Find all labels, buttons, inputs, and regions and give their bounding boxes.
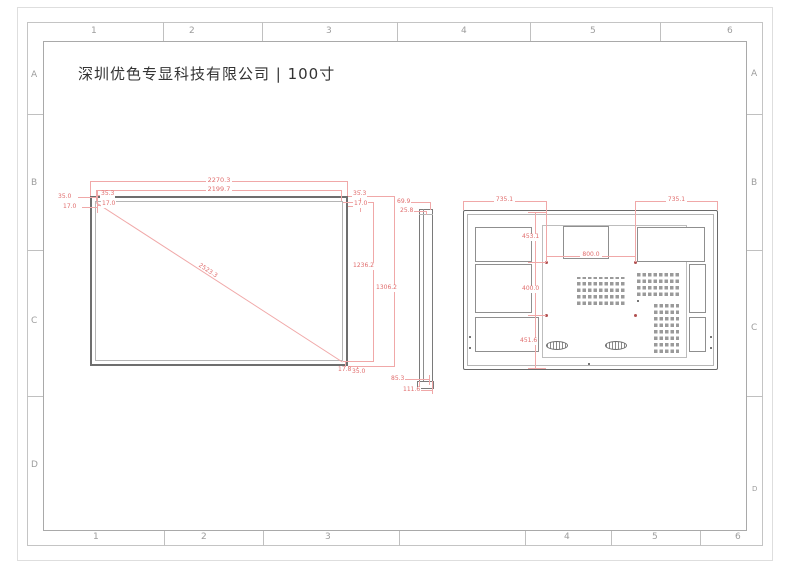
rear-screw [637,300,639,302]
rear-screw [710,336,712,338]
dim-side-top-depth: 69.9 [396,199,411,206]
ruler-col-label: 1 [93,533,99,542]
ruler-row-label: C [31,317,37,326]
dim-ext [78,197,97,198]
dim-front-outer-height: 1306.2 [375,285,398,292]
ruler-row-label: A [751,70,757,79]
dim-front-left-inner: 17.0 [62,204,77,211]
rear-screw [469,336,471,338]
dim-ext [82,207,97,208]
dim-rear-left-offset: 735.1 [463,197,546,204]
dim-front-left-bezel: 35.0 [57,194,72,201]
dim-front-outer-width: 2270.3 [90,177,348,184]
ruler-tick-right [747,114,763,115]
rear-screw [588,363,590,365]
ruler-col-label: 5 [652,533,658,542]
ruler-tick-top [530,22,531,41]
dim-front-right-bezel: 35.3 [352,191,367,198]
ruler-tick-top [397,22,398,41]
rear-panel-top-right [637,227,705,262]
dim-front-bottom-bezel: 35.0 [351,369,366,376]
ruler-col-label: 1 [91,27,97,36]
dim-line-outer-height [394,196,395,366]
ruler-tick-bottom [399,531,400,546]
ruler-tick-bottom [611,531,612,546]
rear-vent-grid-right-lower [654,301,679,353]
rear-panel-right-upper [689,264,706,313]
dim-rear-bottom-offset: 451.6 [519,338,538,345]
ruler-col-label: 4 [564,533,570,542]
ruler-col-label: 6 [735,533,741,542]
ruler-col-label: 5 [590,27,596,36]
ruler-tick-top [660,22,661,41]
dim-front-active-width: 2199.7 [96,186,342,193]
rear-speaker-left [546,341,568,350]
page-title: 深圳优色专显科技有限公司 | 100寸 [78,63,335,84]
drawing-page: { "title": "深圳优色专显科技有限公司 | 100寸", "frame… [0,0,790,573]
dim-side-body-depth: 85.3 [390,376,405,383]
dim-line-active-height [373,202,374,361]
ruler-tick-bottom [164,531,165,546]
dim-ext [348,366,395,367]
dim-ext [426,211,427,215]
rear-panel-right-lower [689,317,706,352]
ruler-row-label: A [31,71,37,80]
ruler-row-label: D [752,486,757,493]
ruler-tick-bottom [700,531,701,546]
ruler-tick-left [27,396,43,397]
dim-front-right-inner: 17.0 [353,201,368,208]
dim-rear-right-offset: 735.1 [635,197,718,204]
ruler-col-label: 4 [461,27,467,36]
ruler-tick-right [747,250,763,251]
ruler-row-label: D [31,461,38,470]
ruler-tick-bottom [525,531,526,546]
rear-screw [469,347,471,349]
ruler-row-label: B [751,179,757,188]
side-panel-line [423,209,424,389]
rear-screw [710,347,712,349]
rear-speaker-right [605,341,627,350]
side-body-rect [419,209,433,389]
vesa-hole [634,314,637,317]
dim-rear-vesa-height: 400.0 [521,286,540,293]
rear-vent-grid-center [577,277,625,305]
ruler-col-label: 3 [325,533,331,542]
dim-ext [528,262,546,263]
dim-side-front-depth: 25.8 [399,208,414,215]
dim-ext [429,375,430,385]
ruler-col-label: 2 [189,27,195,36]
dim-ext [97,190,98,213]
dim-front-top-inner: 17.0 [101,201,116,208]
dim-ext [432,381,433,394]
dim-ext [430,202,431,210]
dim-front-top-bezel: 35.3 [100,191,115,198]
ruler-tick-left [27,114,43,115]
dim-ext [404,379,429,380]
dim-rear-top-offset: 453.1 [521,234,540,241]
dim-rear-vesa-width: 800.0 [546,252,636,259]
rear-panel-bottom-left [475,317,539,352]
ruler-tick-bottom [263,531,264,546]
ruler-row-label: C [751,324,757,333]
dim-ext [528,315,546,316]
ruler-col-label: 3 [326,27,332,36]
ruler-tick-right [747,396,763,397]
dim-side-total-depth: 111.6 [402,387,421,394]
ruler-tick-left [27,250,43,251]
ruler-row-label: B [31,179,37,188]
dim-ext [528,368,546,369]
ruler-tick-top [262,22,263,41]
dim-front-active-height: 1236.2 [352,263,375,270]
ruler-tick-top [163,22,164,41]
rear-vent-grid-right-upper [637,271,679,296]
ruler-col-label: 6 [727,27,733,36]
dim-ext [343,361,374,362]
ruler-col-label: 2 [201,533,207,542]
dim-ext [528,212,546,213]
